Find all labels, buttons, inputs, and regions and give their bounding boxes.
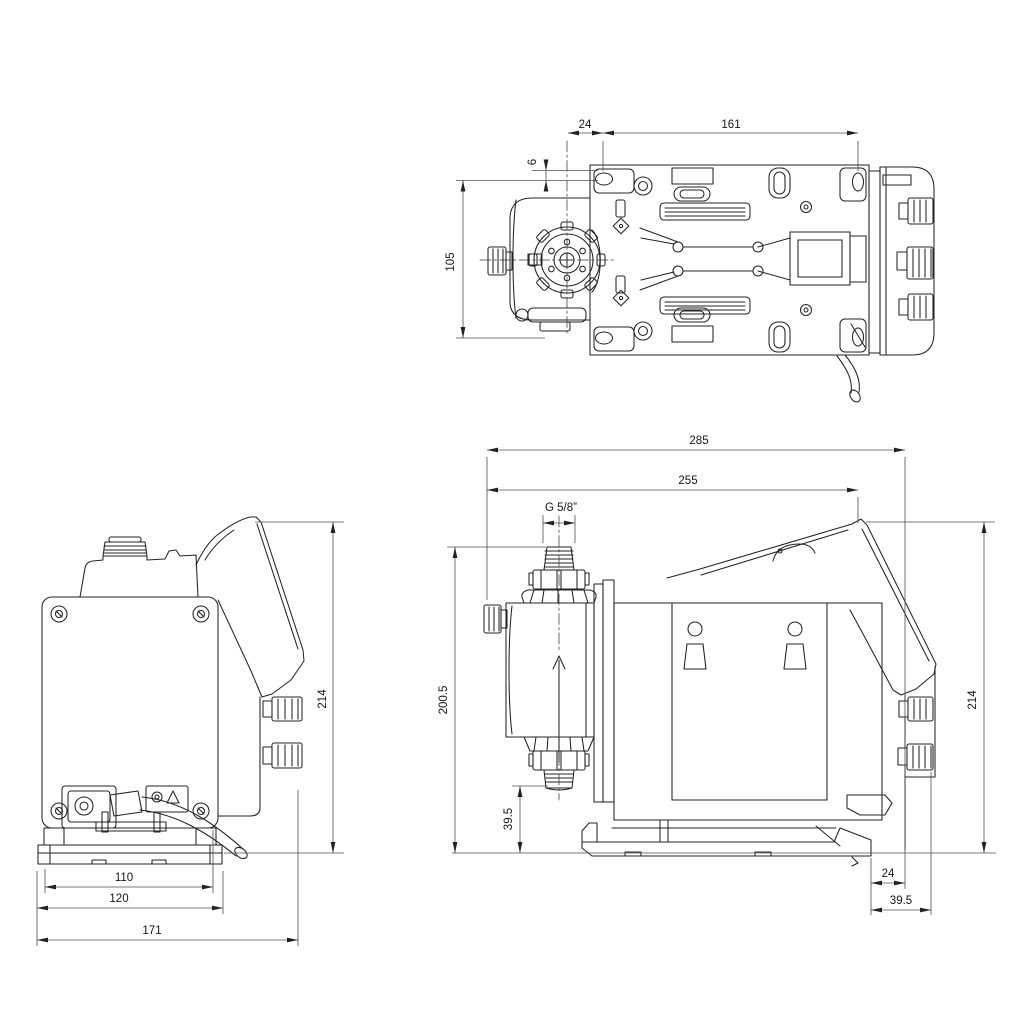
dim-label-side-thread: G 5/8” xyxy=(545,502,577,514)
connector-knob xyxy=(897,247,933,279)
top-view-dimensions: 24 161 6 105 xyxy=(445,119,858,338)
top-view-control-cover xyxy=(837,167,934,404)
rear-view-connectors xyxy=(218,697,302,816)
top-view-mounting-plate xyxy=(590,165,869,355)
dim-label-top-105: 105 xyxy=(445,252,457,271)
dim-label-top-161: 161 xyxy=(721,119,740,131)
dim-label-side-214: 214 xyxy=(967,690,979,710)
dim-label-rear-214: 214 xyxy=(317,689,329,709)
connector-knob xyxy=(899,697,933,721)
dim-label-side-39-5-lower: 39.5 xyxy=(890,895,912,907)
rear-view-pump-top xyxy=(80,537,198,597)
side-view: 285 255 G 5/8” 200.5 39.5 24 39.5 xyxy=(438,435,996,915)
dim-label-side-39-5-upper: 39.5 xyxy=(503,808,515,830)
dim-label-side-200-5: 200.5 xyxy=(438,686,450,715)
technical-drawing: 24 161 6 105 xyxy=(0,0,1024,1024)
dim-label-top-24: 24 xyxy=(579,119,592,131)
side-view-body xyxy=(594,580,892,866)
dim-label-rear-120: 120 xyxy=(109,893,128,905)
dim-label-side-255: 255 xyxy=(678,475,697,487)
mains-cable xyxy=(837,355,862,404)
connector-knob xyxy=(899,198,933,224)
side-view-dimensions: 285 255 G 5/8” 200.5 39.5 24 39.5 xyxy=(438,435,996,915)
connector-knob xyxy=(899,294,933,320)
rear-view: 214 110 120 171 xyxy=(37,517,344,946)
connector-knob xyxy=(898,744,933,770)
dim-label-side-24: 24 xyxy=(882,868,895,880)
dim-label-rear-110: 110 xyxy=(115,872,133,884)
dim-label-top-6: 6 xyxy=(527,159,539,165)
side-view-dosing-head xyxy=(484,516,596,800)
top-view: 24 161 6 105 xyxy=(445,119,934,404)
dim-label-rear-171: 171 xyxy=(142,925,161,937)
dim-label-side-285: 285 xyxy=(689,435,708,447)
